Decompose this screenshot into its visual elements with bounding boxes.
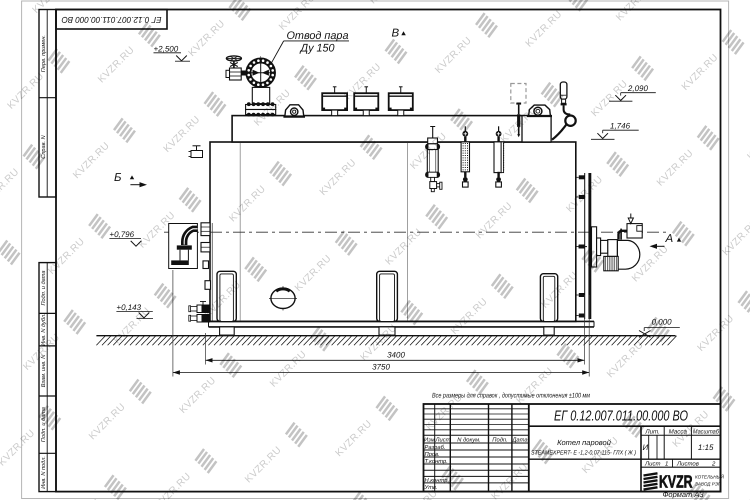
svg-text:KVZR.RU: KVZR.RU	[605, 339, 646, 380]
svg-text:KVZR.RU: KVZR.RU	[71, 140, 112, 181]
svg-text:KVZR.RU: KVZR.RU	[187, 18, 228, 59]
svg-text:Перв. примен.: Перв. примен.	[41, 35, 47, 72]
svg-text:N докум.: N докум.	[457, 437, 480, 444]
svg-text:KVZR.RU: KVZR.RU	[696, 313, 737, 354]
svg-text:И: И	[643, 443, 649, 452]
svg-text:KVZR.RU: KVZR.RU	[6, 71, 47, 112]
svg-text:Лит.: Лит.	[644, 428, 660, 435]
svg-text:KVZR.RU: KVZR.RU	[524, 9, 565, 50]
svg-text:А: А	[665, 233, 674, 245]
svg-text:Отвод пара: Отвод пара	[287, 30, 349, 42]
svg-text:KVZR.RU: KVZR.RU	[31, 0, 72, 16]
svg-text:Подп. и дата: Подп. и дата	[40, 270, 47, 305]
svg-text:KVZR.RU: KVZR.RU	[589, 78, 630, 119]
svg-text:2,090: 2,090	[627, 84, 649, 93]
svg-text:В: В	[392, 27, 400, 39]
svg-text:Лист: Лист	[644, 460, 660, 467]
svg-text:KVZR.RU: KVZR.RU	[736, 478, 750, 500]
svg-text:Дата: Дата	[511, 438, 528, 444]
svg-text:+0,796: +0,796	[109, 230, 134, 239]
svg-text:1,746: 1,746	[610, 121, 631, 130]
svg-text:KVZR.RU: KVZR.RU	[96, 45, 137, 86]
svg-text:KVZR.RU: KVZR.RU	[433, 35, 474, 76]
svg-text:Листов: Листов	[676, 460, 699, 467]
svg-text:1: 1	[665, 460, 668, 467]
svg-text:KVZR.RU: KVZR.RU	[614, 0, 655, 23]
svg-text:2: 2	[711, 460, 716, 467]
svg-text:Инв. N подл.: Инв. N подл.	[40, 456, 47, 489]
svg-text:3400: 3400	[387, 351, 405, 360]
svg-text:KVZR.RU: KVZR.RU	[243, 445, 284, 486]
svg-text:KVZR.RU: KVZR.RU	[680, 52, 721, 93]
svg-text:KVZR.RU: KVZR.RU	[334, 418, 375, 459]
svg-text:+0,143: +0,143	[116, 303, 141, 312]
svg-text:KVZR.RU: KVZR.RU	[0, 167, 22, 208]
svg-text:KVZR.RU: KVZR.RU	[515, 366, 556, 407]
svg-text:KVZR.RU: KVZR.RU	[745, 122, 750, 163]
svg-text:KVZR.RU: KVZR.RU	[277, 0, 318, 33]
svg-text:Разраб.: Разраб.	[425, 444, 446, 451]
svg-text:Ду 150: Ду 150	[299, 43, 336, 55]
svg-text:+2,500: +2,500	[154, 45, 179, 54]
svg-text:Лист: Лист	[435, 438, 451, 444]
svg-text:Подп.: Подп.	[492, 437, 507, 444]
svg-text:KVZR.RU: KVZR.RU	[721, 217, 750, 258]
svg-text:KVZR.RU: KVZR.RU	[655, 148, 696, 189]
svg-text:Пров.: Пров.	[425, 452, 440, 458]
svg-text:КОТЕЛЬНЫЙ: КОТЕЛЬНЫЙ	[695, 474, 725, 480]
svg-text:KVZR.RU: KVZR.RU	[153, 471, 194, 500]
svg-text:KVZR.RU: KVZR.RU	[268, 349, 309, 390]
svg-text:KVZR: KVZR	[659, 472, 693, 492]
svg-text:KVZR.RU: KVZR.RU	[46, 236, 87, 277]
svg-text:Б: Б	[114, 172, 122, 184]
svg-text:KVZR.RU: KVZR.RU	[178, 375, 219, 416]
svg-text:KVZR.RU: KVZR.RU	[490, 462, 531, 500]
svg-text:ЕГ 0.12.007.011.00.000 ВО: ЕГ 0.12.007.011.00.000 ВО	[554, 409, 688, 425]
svg-text:KVZR.RU: KVZR.RU	[0, 428, 37, 469]
svg-text:KVZR.RU: KVZR.RU	[87, 401, 128, 442]
svg-text:1:15: 1:15	[698, 443, 714, 452]
svg-text:Т.контр.: Т.контр.	[425, 459, 448, 465]
svg-text:3750: 3750	[372, 363, 390, 372]
